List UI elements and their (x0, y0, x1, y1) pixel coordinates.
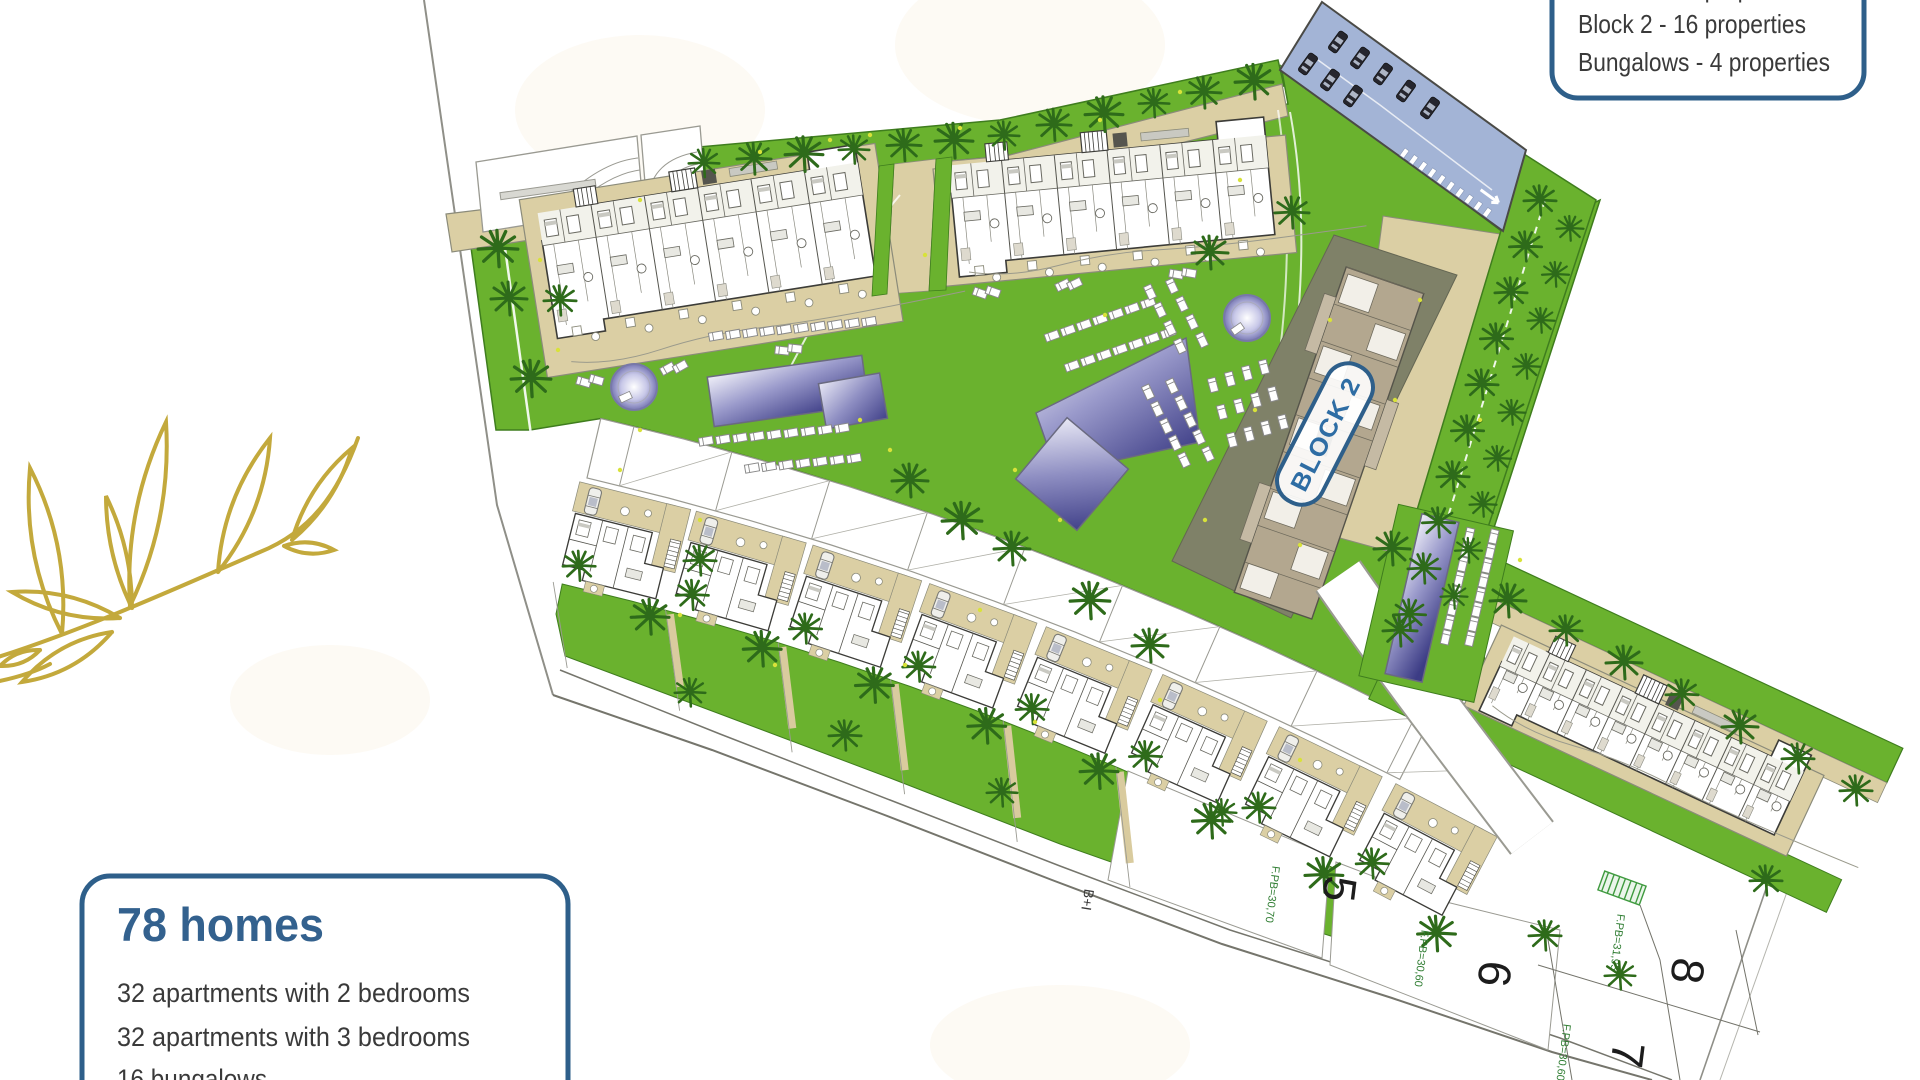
svg-text:32 apartments with 2 bedrooms: 32 apartments with 2 bedrooms (117, 978, 470, 1008)
svg-text:Bungalows - 4 properties: Bungalows - 4 properties (1578, 47, 1830, 77)
svg-text:B+I: B+I (1078, 888, 1097, 912)
svg-text:16 bungalows: 16 bungalows (117, 1064, 267, 1080)
svg-text:Block 1 - 12 properties: Block 1 - 12 properties (1578, 0, 1806, 3)
svg-text:32 apartments with 3 bedrooms: 32 apartments with 3 bedrooms (117, 1022, 470, 1052)
svg-text:Block 2 - 16 properties: Block 2 - 16 properties (1578, 9, 1806, 39)
svg-text:78 homes: 78 homes (117, 898, 324, 951)
